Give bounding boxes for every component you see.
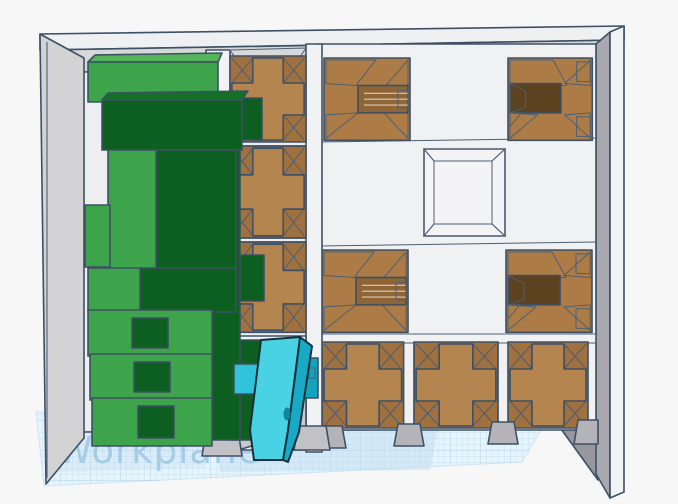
cad-canvas[interactable]: Workplane xyxy=(0,0,678,504)
socket-block-left-slot[interactable] xyxy=(508,58,592,140)
socket-block-left-slot[interactable] xyxy=(506,250,592,332)
socket-block-right-slot[interactable] xyxy=(324,58,410,140)
ramp-hole xyxy=(284,408,291,421)
viewport-3d[interactable]: Workplane xyxy=(0,0,678,504)
square-pocket[interactable] xyxy=(424,149,505,236)
cross-insert[interactable] xyxy=(322,342,404,428)
tray-right-wall xyxy=(610,26,624,498)
socket-block-right-slot[interactable] xyxy=(322,250,408,332)
cross-insert[interactable] xyxy=(414,342,498,428)
cross-insert[interactable] xyxy=(230,146,306,238)
cross-insert[interactable] xyxy=(508,342,588,428)
